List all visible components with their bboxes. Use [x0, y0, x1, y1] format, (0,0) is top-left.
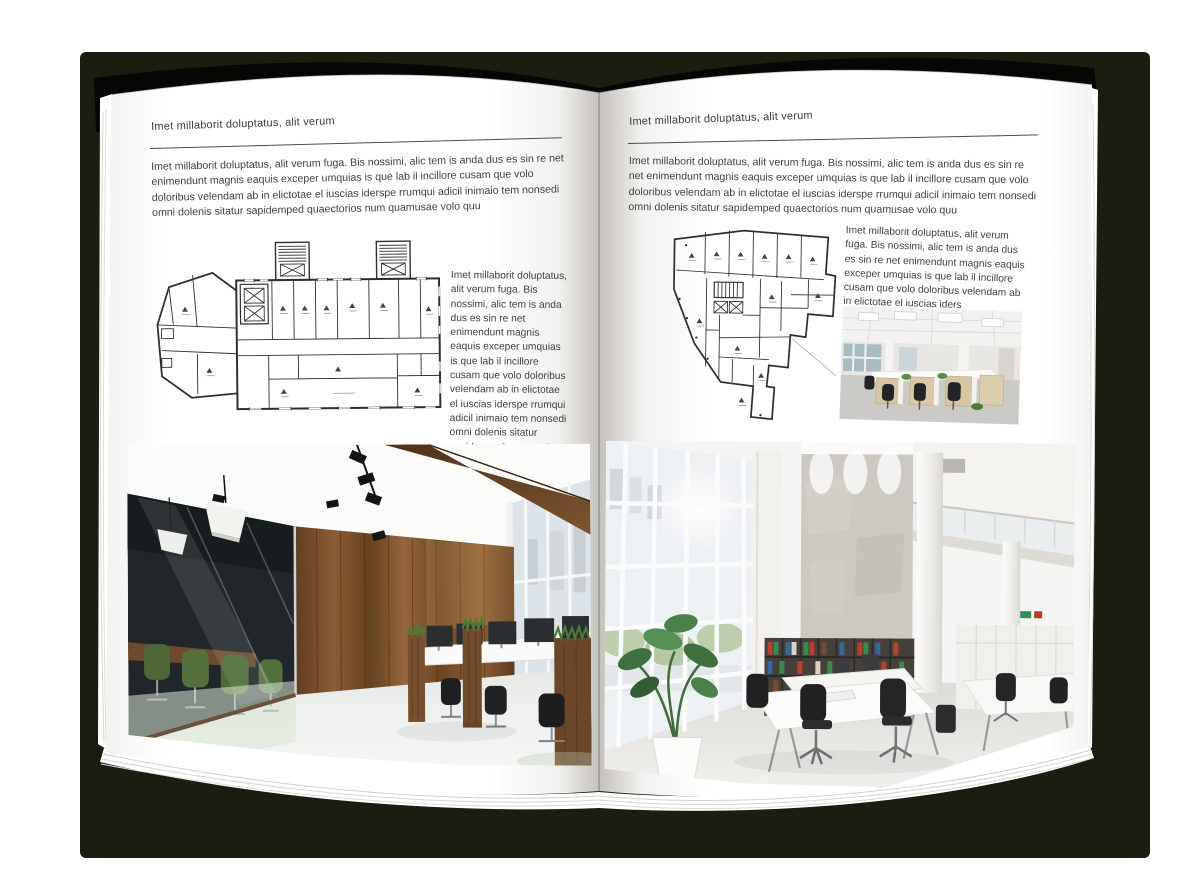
tall-irregular-floor-plan-drawing	[645, 221, 840, 422]
bright-office-illustration	[839, 306, 1021, 425]
left-intro-paragraph: Imet millaborit doluptatus, alit verum f…	[151, 151, 566, 221]
room-label-marks	[182, 302, 432, 395]
stair-tower-icon	[275, 242, 309, 280]
left-side-paragraph: Imet millaborit doluptatus, alit verum f…	[449, 269, 571, 470]
right-floor-plan	[645, 221, 840, 422]
wide-building-floor-plan-drawing	[148, 227, 448, 418]
left-floor-plan	[148, 227, 448, 418]
right-intro-paragraph: Imet millaborit doluptatus, alit verum f…	[628, 154, 1041, 220]
magazine-mockup-canvas: Imet millaborit doluptatus, alit verum I…	[0, 0, 1200, 891]
right-side-paragraph: Imet millaborit doluptatus, alit verum f…	[843, 224, 1030, 316]
office-wood-glass-illustration	[127, 444, 592, 778]
concrete-feature-wall	[800, 442, 913, 655]
waste-bin	[936, 705, 956, 733]
right-office-photo	[604, 441, 1075, 788]
left-office-photo	[127, 444, 592, 778]
stair-tower-icon	[376, 241, 410, 279]
right-small-office-photo	[839, 306, 1021, 425]
double-height-office-illustration	[604, 441, 1075, 788]
